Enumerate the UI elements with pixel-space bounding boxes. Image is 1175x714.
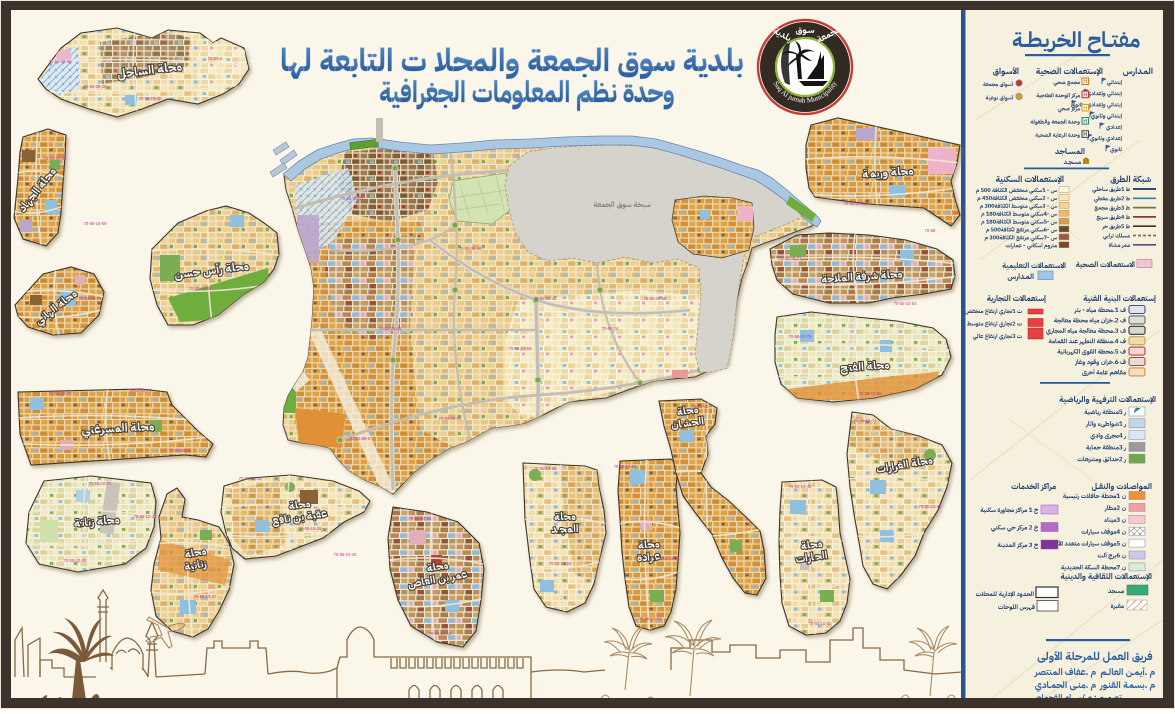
svg-text:H: H <box>1083 132 1087 138</box>
svg-text:70-55-10-42: 70-55-10-42 <box>334 552 357 557</box>
svg-text:72-55-10-66: 72-55-10-66 <box>44 156 67 161</box>
svg-text:70-55-09-73: 70-55-09-73 <box>779 256 802 261</box>
svg-text:70-55-09-5: 70-55-09-5 <box>170 448 191 453</box>
svg-text:70-55-10-58: 70-55-10-58 <box>844 201 867 206</box>
svg-text:70-55-26-46: 70-55-26-46 <box>379 326 402 331</box>
svg-text:H: H <box>1083 119 1087 125</box>
svg-text:70-55: 70-55 <box>925 228 936 233</box>
svg-text:H: H <box>1083 106 1087 112</box>
svg-text:70-55-14-56: 70-55-14-56 <box>534 466 557 471</box>
svg-text:70-55-09-52: 70-55-09-52 <box>439 416 462 421</box>
svg-text:70-55-10-86: 70-55-10-86 <box>859 391 882 396</box>
svg-text:70-55-10-32: 70-55-10-32 <box>134 514 157 519</box>
svg-text:70-55-10-38: 70-55-10-38 <box>299 526 322 531</box>
svg-text:70-55-09-48: 70-55-09-48 <box>534 296 557 301</box>
svg-text:70-55-14-44: 70-55-14-44 <box>549 561 572 566</box>
svg-text:72-55-4: 72-55-4 <box>208 56 223 61</box>
svg-text:70-55-09-49: 70-55-09-49 <box>139 96 162 101</box>
svg-text:H: H <box>1083 92 1087 98</box>
svg-text:H: H <box>1083 79 1087 85</box>
svg-text:70-55-14: 70-55-14 <box>602 326 619 331</box>
svg-text:70-55-15: 70-55-15 <box>692 404 709 409</box>
svg-text:70-55-09-70: 70-55-09-70 <box>49 391 72 396</box>
svg-text:70-55-14-34: 70-55-14-34 <box>189 286 212 291</box>
svg-text:70-55-14-13: 70-55-14-13 <box>429 631 452 636</box>
svg-text:70-55-09-6: 70-55-09-6 <box>350 436 371 441</box>
svg-text:70-55-09-58: 70-55-09-58 <box>644 296 667 301</box>
svg-text:70-55-09-77: 70-55-09-77 <box>129 388 152 393</box>
svg-text:70-55-09-69: 70-55-09-69 <box>49 59 72 64</box>
svg-text:70-55-10-48: 70-55-10-48 <box>789 484 812 489</box>
svg-text:70-55-10-48: 70-55-10-48 <box>64 558 87 563</box>
svg-text:70-55-09-46: 70-55-09-46 <box>459 246 482 251</box>
svg-text:70-55-09-41: 70-55-09-41 <box>341 196 364 201</box>
svg-text:70-55-24-55: 70-55-24-55 <box>509 346 532 351</box>
svg-text:70-55-14-51: 70-55-14-51 <box>657 556 680 561</box>
svg-text:70-55-14-77: 70-55-14-77 <box>79 296 102 301</box>
svg-text:70-55-10-71: 70-55-10-71 <box>854 418 877 423</box>
svg-text:70-55-10-45: 70-55-10-45 <box>919 504 942 509</box>
svg-text:70-55-10-50: 70-55-10-50 <box>809 621 832 626</box>
svg-text:70-55-10-47: 70-55-10-47 <box>194 594 217 599</box>
svg-text:70-55-14-64: 70-55-14-64 <box>639 616 662 621</box>
svg-text:70-55-16-68: 70-55-16-68 <box>84 221 107 226</box>
svg-text:70-55-09-30: 70-55-09-30 <box>84 84 107 89</box>
svg-text:70-55-10-35: 70-55-10-35 <box>239 476 262 481</box>
svg-text:70-55-10-75: 70-55-10-75 <box>789 334 812 339</box>
svg-text:70-55-14-04: 70-55-14-04 <box>409 516 432 521</box>
svg-text:70-55-10-31: 70-55-10-31 <box>89 481 112 486</box>
svg-text:70-55-10-53: 70-55-10-53 <box>894 301 917 306</box>
svg-text:70-55-14-04: 70-55-14-04 <box>614 464 637 469</box>
